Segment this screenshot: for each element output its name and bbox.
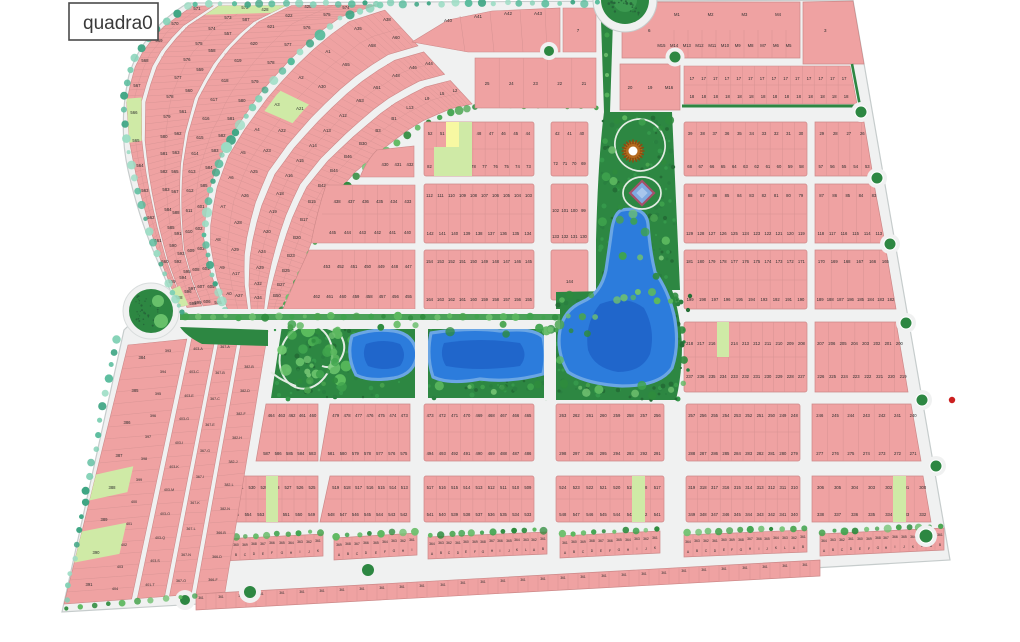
svg-text:149: 149 bbox=[481, 259, 489, 264]
svg-text:515: 515 bbox=[451, 485, 459, 490]
svg-text:518: 518 bbox=[344, 485, 352, 490]
svg-text:524: 524 bbox=[559, 485, 567, 490]
svg-text:361: 361 bbox=[520, 578, 526, 582]
svg-text:580: 580 bbox=[340, 451, 348, 456]
svg-text:M14: M14 bbox=[670, 43, 679, 48]
svg-text:553: 553 bbox=[257, 512, 265, 517]
svg-text:17: 17 bbox=[818, 76, 823, 81]
svg-text:B27: B27 bbox=[277, 282, 285, 287]
svg-text:M3: M3 bbox=[741, 12, 747, 17]
svg-text:489: 489 bbox=[488, 451, 496, 456]
svg-text:473: 473 bbox=[427, 413, 435, 418]
svg-text:100: 100 bbox=[571, 208, 579, 213]
svg-text:79: 79 bbox=[799, 193, 804, 198]
svg-text:86: 86 bbox=[832, 193, 837, 198]
svg-text:236: 236 bbox=[697, 374, 705, 379]
svg-text:I: I bbox=[759, 547, 760, 551]
svg-text:459: 459 bbox=[352, 294, 360, 299]
svg-text:A18: A18 bbox=[276, 191, 284, 196]
svg-text:139: 139 bbox=[463, 231, 471, 236]
svg-text:259: 259 bbox=[613, 413, 621, 418]
svg-text:515: 515 bbox=[378, 485, 386, 490]
svg-text:477: 477 bbox=[355, 413, 363, 418]
svg-text:560: 560 bbox=[185, 88, 193, 93]
svg-text:302: 302 bbox=[885, 485, 893, 490]
svg-text:444: 444 bbox=[344, 230, 352, 235]
svg-text:361: 361 bbox=[315, 539, 321, 543]
svg-text:367: 367 bbox=[489, 539, 495, 543]
svg-text:197: 197 bbox=[711, 297, 719, 302]
svg-text:214: 214 bbox=[731, 341, 739, 346]
svg-text:39: 39 bbox=[688, 131, 693, 136]
svg-text:17: 17 bbox=[807, 76, 812, 81]
svg-text:306: 306 bbox=[817, 485, 825, 490]
svg-text:317: 317 bbox=[711, 485, 719, 490]
svg-text:369: 369 bbox=[336, 543, 342, 547]
svg-text:70: 70 bbox=[572, 161, 577, 166]
svg-text:A53: A53 bbox=[356, 98, 364, 103]
svg-text:517: 517 bbox=[427, 485, 435, 490]
svg-text:364: 364 bbox=[821, 539, 827, 543]
svg-text:360: 360 bbox=[463, 540, 469, 544]
svg-text:132: 132 bbox=[561, 234, 569, 239]
svg-text:223: 223 bbox=[853, 374, 861, 379]
svg-text:510: 510 bbox=[512, 485, 520, 490]
svg-text:M5: M5 bbox=[786, 43, 792, 48]
svg-text:29: 29 bbox=[819, 131, 824, 136]
svg-text:428: 428 bbox=[261, 7, 269, 12]
svg-text:366: 366 bbox=[607, 539, 613, 543]
svg-text:363: 363 bbox=[634, 537, 640, 541]
svg-text:584: 584 bbox=[205, 165, 213, 170]
svg-text:180: 180 bbox=[697, 259, 705, 264]
svg-text:294: 294 bbox=[613, 451, 621, 456]
svg-text:431: 431 bbox=[395, 162, 403, 167]
svg-text:42: 42 bbox=[555, 131, 560, 136]
svg-text:297: 297 bbox=[573, 451, 581, 456]
svg-text:I: I bbox=[412, 548, 413, 552]
svg-text:453: 453 bbox=[323, 264, 331, 269]
svg-text:362: 362 bbox=[400, 539, 406, 543]
svg-text:A27: A27 bbox=[235, 293, 243, 298]
svg-text:578: 578 bbox=[364, 451, 372, 456]
svg-text:75: 75 bbox=[504, 164, 509, 169]
svg-text:466: 466 bbox=[512, 413, 520, 418]
svg-text:F: F bbox=[609, 549, 611, 553]
svg-text:361: 361 bbox=[712, 539, 718, 543]
svg-text:J: J bbox=[645, 547, 647, 551]
svg-text:563: 563 bbox=[172, 150, 180, 155]
svg-text:364: 364 bbox=[685, 540, 691, 544]
svg-text:145: 145 bbox=[525, 259, 533, 264]
svg-text:182: 182 bbox=[887, 297, 895, 302]
svg-text:A25: A25 bbox=[250, 169, 258, 174]
svg-text:621: 621 bbox=[267, 24, 275, 29]
svg-text:577: 577 bbox=[284, 42, 292, 47]
svg-text:17: 17 bbox=[830, 76, 835, 81]
svg-text:M2: M2 bbox=[708, 12, 714, 17]
svg-text:361: 361 bbox=[742, 566, 748, 570]
svg-text:257: 257 bbox=[640, 413, 648, 418]
svg-text:102: 102 bbox=[552, 208, 560, 213]
svg-text:17: 17 bbox=[795, 76, 800, 81]
svg-text:M6: M6 bbox=[773, 43, 779, 48]
svg-text:202: 202 bbox=[873, 341, 881, 346]
svg-text:A41: A41 bbox=[474, 14, 483, 19]
svg-text:A55: A55 bbox=[342, 62, 350, 67]
svg-text:122: 122 bbox=[764, 231, 772, 236]
svg-text:115: 115 bbox=[852, 231, 859, 236]
svg-text:360: 360 bbox=[857, 537, 863, 541]
svg-text:275: 275 bbox=[847, 451, 855, 456]
svg-text:74: 74 bbox=[515, 164, 520, 169]
svg-text:26: 26 bbox=[860, 131, 865, 136]
svg-text:249: 249 bbox=[779, 413, 787, 418]
svg-text:M13: M13 bbox=[683, 43, 692, 48]
svg-text:509: 509 bbox=[524, 485, 532, 490]
svg-text:152: 152 bbox=[448, 259, 456, 264]
svg-text:206: 206 bbox=[828, 341, 836, 346]
svg-text:575: 575 bbox=[400, 451, 408, 456]
svg-text:35: 35 bbox=[737, 131, 742, 136]
svg-text:109: 109 bbox=[459, 193, 467, 198]
svg-text:271: 271 bbox=[910, 451, 918, 456]
svg-text:455: 455 bbox=[405, 294, 413, 299]
svg-text:366: 366 bbox=[756, 537, 762, 541]
svg-text:M4: M4 bbox=[775, 12, 781, 17]
svg-text:240: 240 bbox=[910, 413, 918, 418]
svg-text:366: 366 bbox=[892, 535, 898, 539]
svg-text:84: 84 bbox=[737, 193, 742, 198]
svg-text:38: 38 bbox=[700, 131, 705, 136]
svg-text:432: 432 bbox=[407, 162, 415, 167]
svg-text:A58: A58 bbox=[368, 43, 376, 48]
svg-text:576: 576 bbox=[183, 57, 191, 62]
svg-text:361: 361 bbox=[540, 537, 546, 541]
svg-text:190: 190 bbox=[797, 297, 805, 302]
svg-text:151: 151 bbox=[459, 259, 467, 264]
svg-text:361: 361 bbox=[681, 569, 687, 573]
svg-text:107: 107 bbox=[481, 193, 489, 198]
svg-text:37: 37 bbox=[712, 131, 717, 136]
svg-text:69: 69 bbox=[581, 161, 586, 166]
svg-text:470: 470 bbox=[463, 413, 471, 418]
svg-text:178: 178 bbox=[720, 259, 728, 264]
svg-text:620: 620 bbox=[250, 41, 258, 46]
svg-text:513: 513 bbox=[476, 485, 484, 490]
svg-text:18: 18 bbox=[832, 94, 837, 99]
svg-text:368: 368 bbox=[875, 536, 881, 540]
svg-text:361: 361 bbox=[937, 533, 943, 537]
svg-text:M16: M16 bbox=[665, 85, 674, 90]
svg-text:361: 361 bbox=[661, 571, 667, 575]
svg-text:517: 517 bbox=[355, 485, 363, 490]
svg-text:430: 430 bbox=[382, 162, 390, 167]
svg-text:365: 365 bbox=[506, 539, 512, 543]
svg-text:222: 222 bbox=[864, 374, 872, 379]
svg-text:537: 537 bbox=[476, 512, 484, 517]
svg-text:62: 62 bbox=[754, 164, 759, 169]
svg-text:118: 118 bbox=[817, 231, 824, 236]
svg-text:522: 522 bbox=[586, 485, 594, 490]
svg-text:203: 203 bbox=[862, 341, 870, 346]
svg-text:273: 273 bbox=[879, 451, 887, 456]
svg-text:438: 438 bbox=[334, 199, 342, 204]
svg-text:390: 390 bbox=[93, 550, 101, 555]
svg-text:156: 156 bbox=[514, 297, 522, 302]
svg-text:587: 587 bbox=[263, 451, 271, 456]
svg-text:183: 183 bbox=[877, 297, 885, 302]
svg-text:A35: A35 bbox=[354, 26, 362, 31]
svg-text:114: 114 bbox=[864, 231, 871, 236]
svg-text:124: 124 bbox=[742, 231, 750, 236]
svg-text:368: 368 bbox=[589, 539, 595, 543]
svg-text:A51: A51 bbox=[373, 85, 381, 90]
svg-text:514: 514 bbox=[463, 485, 471, 490]
svg-text:A40: A40 bbox=[444, 18, 453, 23]
svg-text:M7: M7 bbox=[760, 43, 766, 48]
svg-text:585: 585 bbox=[286, 451, 294, 456]
svg-text:133: 133 bbox=[552, 234, 560, 239]
svg-text:166: 166 bbox=[869, 259, 877, 264]
svg-text:542: 542 bbox=[400, 512, 408, 517]
svg-text:101: 101 bbox=[561, 208, 569, 213]
svg-text:53: 53 bbox=[865, 164, 870, 169]
svg-text:77: 77 bbox=[482, 164, 487, 169]
svg-text:245: 245 bbox=[832, 413, 840, 418]
svg-text:361: 361 bbox=[279, 591, 285, 595]
svg-text:516: 516 bbox=[367, 485, 375, 490]
svg-text:587: 587 bbox=[242, 17, 250, 22]
svg-text:316: 316 bbox=[722, 485, 730, 490]
svg-text:382-B: 382-B bbox=[244, 365, 254, 369]
svg-text:367-C: 367-C bbox=[210, 397, 220, 401]
svg-text:580: 580 bbox=[238, 98, 246, 103]
svg-text:A8: A8 bbox=[215, 237, 221, 242]
svg-text:437: 437 bbox=[348, 199, 356, 204]
svg-text:258: 258 bbox=[627, 413, 635, 418]
svg-text:493: 493 bbox=[439, 451, 447, 456]
svg-text:440: 440 bbox=[404, 230, 412, 235]
svg-text:533: 533 bbox=[524, 512, 532, 517]
svg-text:545: 545 bbox=[600, 512, 608, 517]
svg-text:361: 361 bbox=[339, 588, 345, 592]
svg-text:136: 136 bbox=[500, 231, 508, 236]
svg-text:401-T: 401-T bbox=[145, 583, 155, 587]
svg-text:449: 449 bbox=[378, 264, 386, 269]
svg-text:17: 17 bbox=[760, 76, 765, 81]
svg-text:76: 76 bbox=[493, 164, 498, 169]
svg-text:205: 205 bbox=[840, 341, 848, 346]
svg-text:361: 361 bbox=[299, 590, 305, 594]
svg-text:520: 520 bbox=[613, 485, 621, 490]
svg-text:550: 550 bbox=[295, 512, 303, 517]
svg-text:612: 612 bbox=[186, 188, 194, 193]
svg-text:557: 557 bbox=[224, 31, 232, 36]
svg-text:361: 361 bbox=[455, 541, 461, 545]
svg-text:18: 18 bbox=[844, 94, 849, 99]
svg-text:367-G: 367-G bbox=[200, 449, 210, 453]
svg-text:360: 360 bbox=[721, 538, 727, 542]
svg-text:194: 194 bbox=[748, 297, 756, 302]
svg-text:23: 23 bbox=[533, 81, 538, 86]
svg-text:M12: M12 bbox=[695, 43, 704, 48]
svg-text:17: 17 bbox=[690, 76, 695, 81]
svg-text:36: 36 bbox=[725, 131, 730, 136]
svg-text:225: 225 bbox=[829, 374, 837, 379]
svg-text:361: 361 bbox=[848, 537, 854, 541]
svg-text:71: 71 bbox=[563, 161, 568, 166]
svg-text:17: 17 bbox=[725, 76, 730, 81]
svg-text:17: 17 bbox=[713, 76, 718, 81]
svg-text:B46: B46 bbox=[344, 154, 352, 159]
svg-text:106: 106 bbox=[492, 193, 500, 198]
svg-text:403-I: 403-I bbox=[175, 441, 183, 445]
svg-text:361: 361 bbox=[601, 574, 607, 578]
svg-text:129: 129 bbox=[686, 231, 694, 236]
svg-text:18: 18 bbox=[820, 94, 825, 99]
svg-text:F: F bbox=[731, 548, 733, 552]
svg-text:561: 561 bbox=[179, 109, 187, 114]
svg-text:158: 158 bbox=[492, 297, 500, 302]
svg-text:108: 108 bbox=[470, 193, 478, 198]
svg-text:543: 543 bbox=[388, 512, 396, 517]
svg-text:363: 363 bbox=[391, 539, 397, 543]
svg-text:165: 165 bbox=[882, 259, 890, 264]
svg-text:403-G: 403-G bbox=[179, 417, 189, 421]
svg-text:200: 200 bbox=[896, 341, 904, 346]
svg-text:382-L: 382-L bbox=[224, 483, 233, 487]
svg-text:582: 582 bbox=[160, 169, 168, 174]
svg-text:B15: B15 bbox=[308, 199, 316, 204]
svg-text:241: 241 bbox=[894, 413, 902, 418]
svg-text:368: 368 bbox=[480, 540, 486, 544]
svg-text:398: 398 bbox=[141, 457, 147, 461]
svg-text:177: 177 bbox=[731, 259, 739, 264]
svg-text:615: 615 bbox=[196, 135, 204, 140]
svg-text:367-K: 367-K bbox=[190, 501, 200, 505]
svg-text:487: 487 bbox=[512, 451, 520, 456]
svg-text:175: 175 bbox=[753, 259, 761, 264]
svg-text:365: 365 bbox=[373, 541, 379, 545]
svg-text:494: 494 bbox=[427, 451, 435, 456]
svg-text:403-O: 403-O bbox=[160, 512, 170, 516]
svg-text:171: 171 bbox=[798, 259, 806, 264]
svg-text:G: G bbox=[482, 550, 485, 554]
svg-text:361: 361 bbox=[621, 573, 627, 577]
svg-text:184: 184 bbox=[867, 297, 875, 302]
svg-text:216: 216 bbox=[709, 341, 717, 346]
svg-text:319: 319 bbox=[688, 485, 696, 490]
svg-text:583: 583 bbox=[309, 451, 317, 456]
svg-text:18: 18 bbox=[737, 94, 742, 99]
svg-text:148: 148 bbox=[492, 259, 500, 264]
svg-text:546: 546 bbox=[586, 512, 594, 517]
svg-text:218: 218 bbox=[686, 341, 694, 346]
svg-text:361: 361 bbox=[641, 572, 647, 576]
svg-text:361: 361 bbox=[359, 587, 365, 591]
svg-text:116: 116 bbox=[841, 231, 848, 236]
svg-text:361: 361 bbox=[399, 585, 405, 589]
svg-text:33: 33 bbox=[762, 131, 767, 136]
svg-text:462: 462 bbox=[289, 413, 297, 418]
svg-text:228: 228 bbox=[787, 374, 795, 379]
svg-text:458: 458 bbox=[366, 294, 374, 299]
svg-text:311: 311 bbox=[780, 485, 787, 490]
svg-text:535: 535 bbox=[500, 512, 508, 517]
svg-text:388: 388 bbox=[109, 485, 117, 490]
svg-text:403-K: 403-K bbox=[169, 465, 179, 469]
svg-text:L: L bbox=[784, 546, 786, 550]
svg-text:172: 172 bbox=[787, 259, 795, 264]
svg-text:86: 86 bbox=[712, 193, 717, 198]
svg-text:618: 618 bbox=[221, 78, 229, 83]
svg-text:525: 525 bbox=[309, 485, 317, 490]
svg-text:19: 19 bbox=[648, 85, 653, 90]
svg-text:433: 433 bbox=[404, 199, 412, 204]
svg-text:475: 475 bbox=[378, 413, 386, 418]
svg-text:282: 282 bbox=[757, 451, 765, 456]
svg-text:161: 161 bbox=[459, 297, 467, 302]
svg-text:138: 138 bbox=[476, 231, 484, 236]
svg-text:315: 315 bbox=[734, 485, 742, 490]
svg-text:A17: A17 bbox=[232, 271, 240, 276]
svg-text:212: 212 bbox=[753, 341, 761, 346]
svg-text:337: 337 bbox=[834, 512, 842, 517]
svg-text:474: 474 bbox=[389, 413, 397, 418]
svg-text:403-M: 403-M bbox=[164, 488, 174, 492]
svg-text:284: 284 bbox=[734, 451, 742, 456]
svg-text:34: 34 bbox=[749, 131, 754, 136]
svg-text:362: 362 bbox=[446, 541, 452, 545]
svg-text:201: 201 bbox=[885, 341, 893, 346]
svg-text:382-F: 382-F bbox=[236, 412, 246, 416]
svg-text:365: 365 bbox=[616, 538, 622, 542]
svg-text:103: 103 bbox=[525, 193, 533, 198]
svg-text:277: 277 bbox=[816, 451, 824, 456]
svg-text:399: 399 bbox=[136, 478, 142, 482]
svg-text:B44: B44 bbox=[330, 168, 338, 173]
svg-text:367-O: 367-O bbox=[176, 579, 186, 583]
svg-text:298: 298 bbox=[559, 451, 567, 456]
svg-text:A13: A13 bbox=[323, 128, 331, 133]
svg-text:361: 361 bbox=[580, 575, 586, 579]
svg-text:457: 457 bbox=[379, 294, 387, 299]
svg-text:303: 303 bbox=[868, 485, 876, 490]
svg-text:565: 565 bbox=[171, 169, 179, 174]
svg-text:540: 540 bbox=[439, 512, 447, 517]
svg-text:128: 128 bbox=[697, 231, 705, 236]
svg-text:546: 546 bbox=[352, 512, 360, 517]
svg-text:619: 619 bbox=[234, 58, 242, 63]
svg-text:47: 47 bbox=[489, 131, 494, 136]
svg-text:A24: A24 bbox=[258, 249, 266, 254]
svg-text:234: 234 bbox=[720, 374, 728, 379]
svg-text:224: 224 bbox=[841, 374, 849, 379]
svg-text:127: 127 bbox=[709, 231, 717, 236]
svg-text:142: 142 bbox=[427, 231, 435, 236]
svg-text:276: 276 bbox=[832, 451, 840, 456]
svg-text:170: 170 bbox=[818, 259, 826, 264]
svg-text:593: 593 bbox=[177, 251, 185, 256]
svg-text:403-E: 403-E bbox=[184, 394, 194, 398]
svg-text:G: G bbox=[877, 546, 880, 550]
svg-text:87: 87 bbox=[700, 193, 705, 198]
svg-text:226: 226 bbox=[817, 374, 825, 379]
svg-text:18: 18 bbox=[749, 94, 754, 99]
svg-text:382-J: 382-J bbox=[229, 460, 238, 464]
svg-text:318: 318 bbox=[700, 485, 708, 490]
